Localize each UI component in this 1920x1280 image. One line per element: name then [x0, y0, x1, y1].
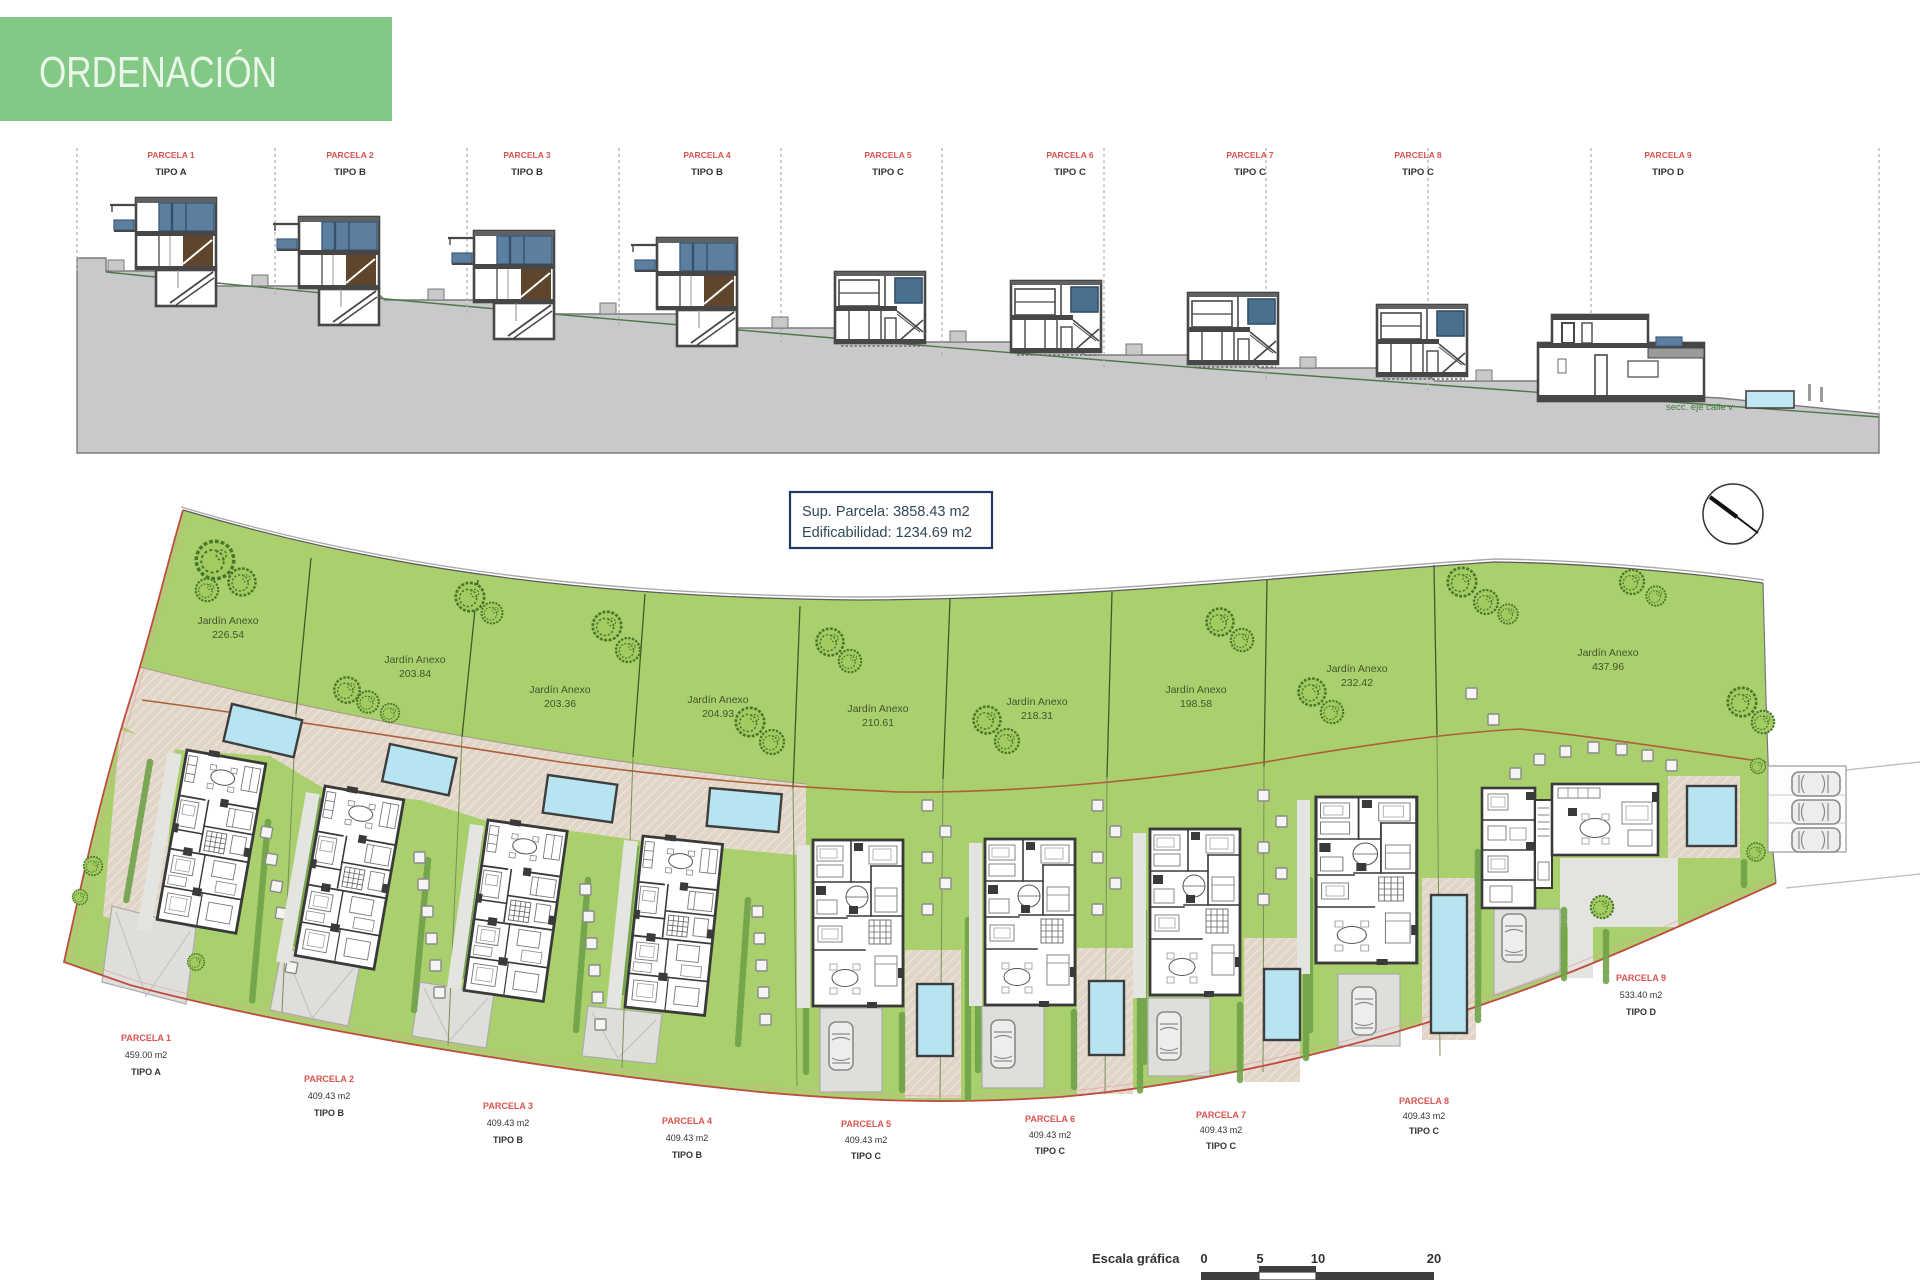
- svg-text:437.96: 437.96: [1592, 661, 1624, 673]
- svg-text:409.43 m2: 409.43 m2: [487, 1118, 530, 1128]
- svg-text:TIPO A: TIPO A: [131, 1067, 161, 1077]
- svg-text:Jardín Anexo: Jardín Anexo: [384, 654, 445, 666]
- svg-text:PARCELA 7: PARCELA 7: [1226, 150, 1274, 160]
- svg-text:ORDENACIÓN: ORDENACIÓN: [39, 48, 277, 97]
- svg-text:TIPO C: TIPO C: [1035, 1146, 1066, 1156]
- svg-text:PARCELA 2: PARCELA 2: [326, 150, 374, 160]
- svg-text:TIPO C: TIPO C: [1402, 167, 1434, 178]
- svg-text:409.43 m2: 409.43 m2: [1029, 1130, 1072, 1140]
- svg-text:204.93: 204.93: [702, 708, 734, 720]
- svg-text:203.36: 203.36: [544, 698, 576, 710]
- svg-text:PARCELA 6: PARCELA 6: [1046, 150, 1094, 160]
- svg-text:Jardín Anexo: Jardín Anexo: [687, 694, 748, 706]
- svg-text:TIPO B: TIPO B: [672, 1150, 703, 1160]
- svg-text:PARCELA 1: PARCELA 1: [121, 1033, 171, 1043]
- svg-text:218.31: 218.31: [1021, 710, 1053, 722]
- svg-text:TIPO C: TIPO C: [851, 1151, 882, 1161]
- svg-text:210.61: 210.61: [862, 717, 894, 729]
- svg-text:Jardín Anexo: Jardín Anexo: [197, 615, 258, 627]
- svg-text:PARCELA 7: PARCELA 7: [1196, 1110, 1246, 1120]
- svg-text:198.58: 198.58: [1180, 698, 1212, 710]
- svg-text:409.43 m2: 409.43 m2: [666, 1133, 709, 1143]
- svg-text:PARCELA 9: PARCELA 9: [1616, 973, 1666, 983]
- svg-text:20: 20: [1427, 1251, 1441, 1266]
- svg-text:PARCELA 8: PARCELA 8: [1394, 150, 1442, 160]
- svg-text:Jardín Anexo: Jardín Anexo: [1165, 684, 1226, 696]
- svg-text:Jardín Anexo: Jardín Anexo: [847, 703, 908, 715]
- svg-text:533.40 m2: 533.40 m2: [1620, 990, 1663, 1000]
- svg-text:TIPO A: TIPO A: [155, 167, 186, 178]
- svg-text:PARCELA 6: PARCELA 6: [1025, 1114, 1075, 1124]
- svg-text:TIPO C: TIPO C: [1206, 1141, 1237, 1151]
- svg-text:TIPO C: TIPO C: [872, 167, 904, 178]
- svg-text:TIPO C: TIPO C: [1234, 167, 1266, 178]
- svg-text:5: 5: [1256, 1251, 1263, 1266]
- svg-text:409.43 m2: 409.43 m2: [308, 1091, 351, 1101]
- svg-text:PARCELA 1: PARCELA 1: [147, 150, 195, 160]
- svg-text:PARCELA 4: PARCELA 4: [683, 150, 731, 160]
- svg-text:TIPO B: TIPO B: [314, 1108, 345, 1118]
- svg-text:TIPO D: TIPO D: [1626, 1007, 1657, 1017]
- svg-text:TIPO D: TIPO D: [1652, 167, 1684, 178]
- svg-text:409.43 m2: 409.43 m2: [1200, 1125, 1243, 1135]
- svg-text:TIPO C: TIPO C: [1054, 167, 1086, 178]
- svg-text:PARCELA 5: PARCELA 5: [841, 1119, 891, 1129]
- svg-text:Jardín Anexo: Jardín Anexo: [529, 684, 590, 696]
- svg-text:PARCELA 2: PARCELA 2: [304, 1074, 354, 1084]
- svg-text:Jardín Anexo: Jardín Anexo: [1006, 696, 1067, 708]
- svg-text:PARCELA 5: PARCELA 5: [864, 150, 912, 160]
- svg-text:TIPO B: TIPO B: [493, 1135, 524, 1145]
- svg-text:PARCELA 3: PARCELA 3: [503, 150, 551, 160]
- svg-text:PARCELA 8: PARCELA 8: [1399, 1096, 1449, 1106]
- svg-text:TIPO B: TIPO B: [691, 167, 723, 178]
- svg-text:Jardín Anexo: Jardín Anexo: [1326, 663, 1387, 675]
- svg-text:0: 0: [1200, 1251, 1207, 1266]
- svg-text:TIPO B: TIPO B: [511, 167, 543, 178]
- svg-text:Escala gráfica: Escala gráfica: [1092, 1251, 1180, 1266]
- svg-text:203.84: 203.84: [399, 668, 431, 680]
- svg-text:PARCELA 4: PARCELA 4: [662, 1116, 712, 1126]
- svg-text:TIPO C: TIPO C: [1409, 1126, 1440, 1136]
- svg-text:232.42: 232.42: [1341, 677, 1373, 689]
- svg-text:10: 10: [1311, 1251, 1325, 1266]
- svg-text:Sup. Parcela: 3858.43 m2: Sup. Parcela: 3858.43 m2: [802, 504, 970, 520]
- svg-text:PARCELA 9: PARCELA 9: [1644, 150, 1692, 160]
- svg-text:409.43 m2: 409.43 m2: [845, 1135, 888, 1145]
- svg-text:226.54: 226.54: [212, 629, 244, 641]
- svg-text:TIPO B: TIPO B: [334, 167, 366, 178]
- svg-text:459.00 m2: 459.00 m2: [125, 1050, 168, 1060]
- svg-text:secc. eje calle v: secc. eje calle v: [1666, 402, 1733, 413]
- svg-text:409.43 m2: 409.43 m2: [1403, 1111, 1446, 1121]
- svg-text:Jardín Anexo: Jardín Anexo: [1577, 647, 1638, 659]
- svg-text:Edificabilidad: 1234.69 m2: Edificabilidad: 1234.69 m2: [802, 525, 972, 541]
- svg-text:PARCELA 3: PARCELA 3: [483, 1101, 533, 1111]
